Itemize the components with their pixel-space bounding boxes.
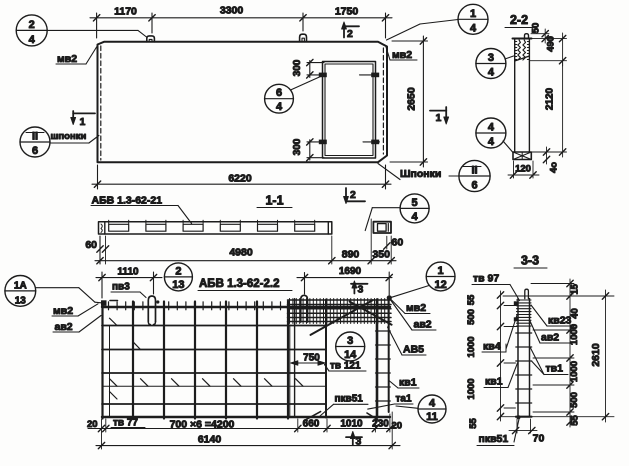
svg-text:тв1: тв1 <box>546 363 564 375</box>
svg-text:1010: 1010 <box>340 419 363 430</box>
svg-text:2: 2 <box>347 28 353 40</box>
svg-text:300: 300 <box>292 138 303 155</box>
svg-text:1000: 1000 <box>466 336 477 357</box>
svg-text:4o: 4o <box>549 162 560 173</box>
svg-text:1А: 1А <box>14 280 27 291</box>
svg-text:1: 1 <box>470 8 476 20</box>
svg-text:13: 13 <box>15 295 27 306</box>
svg-text:мв2: мв2 <box>392 49 412 61</box>
svg-text:4980: 4980 <box>229 247 253 259</box>
svg-text:1000: 1000 <box>569 324 580 345</box>
svg-text:3-3: 3-3 <box>521 254 539 268</box>
svg-text:2610: 2610 <box>590 343 602 367</box>
svg-text:шпонки: шпонки <box>51 131 87 142</box>
svg-text:1110: 1110 <box>117 267 139 278</box>
svg-text:15: 15 <box>570 283 581 294</box>
svg-text:кв4: кв4 <box>483 341 501 353</box>
svg-text:пв3: пв3 <box>112 282 130 293</box>
svg-text:6: 6 <box>471 180 477 192</box>
svg-text:АБВ 1.3-62-21: АБВ 1.3-62-21 <box>92 195 163 207</box>
svg-text:2: 2 <box>175 265 181 277</box>
svg-text:1: 1 <box>436 112 442 124</box>
svg-text:230: 230 <box>372 419 389 430</box>
svg-text:1: 1 <box>438 265 444 277</box>
svg-text:4: 4 <box>470 22 477 34</box>
svg-text:мв2: мв2 <box>53 305 73 317</box>
svg-text:120: 120 <box>515 164 531 175</box>
svg-text:тв 97: тв 97 <box>473 273 499 285</box>
svg-text:4: 4 <box>429 398 436 410</box>
svg-text:мв2: мв2 <box>57 53 77 65</box>
svg-text:1000: 1000 <box>466 378 477 399</box>
svg-text:55: 55 <box>570 415 581 426</box>
svg-text:3: 3 <box>347 335 353 347</box>
svg-text:2120: 2120 <box>545 87 556 110</box>
svg-text:20: 20 <box>87 419 98 430</box>
svg-text:500: 500 <box>569 392 580 408</box>
svg-text:6140: 6140 <box>198 434 222 446</box>
svg-text:Шпонки: Шпонки <box>400 168 441 180</box>
svg-text:2650: 2650 <box>406 87 418 111</box>
svg-text:4: 4 <box>488 122 495 134</box>
svg-text:кв1: кв1 <box>399 377 417 389</box>
svg-text:40: 40 <box>570 308 581 319</box>
svg-text:20: 20 <box>392 421 403 432</box>
svg-text:6: 6 <box>276 87 282 99</box>
svg-text:та1: та1 <box>396 394 412 405</box>
svg-text:ав2: ав2 <box>55 321 73 333</box>
svg-text:55: 55 <box>468 418 479 429</box>
svg-text:500: 500 <box>466 309 477 325</box>
svg-text:5: 5 <box>412 197 418 209</box>
svg-text:490: 490 <box>546 36 557 52</box>
svg-text:3300: 3300 <box>220 5 244 17</box>
svg-text:тв 121: тв 121 <box>330 361 361 372</box>
svg-text:6220: 6220 <box>228 173 252 185</box>
svg-text:мв2: мв2 <box>406 302 426 314</box>
svg-text:12: 12 <box>434 279 446 291</box>
svg-text:1170: 1170 <box>114 6 137 18</box>
svg-text:700 ×6 =4200: 700 ×6 =4200 <box>170 419 235 431</box>
svg-text:70: 70 <box>533 433 545 445</box>
svg-text:300: 300 <box>292 59 303 76</box>
svg-text:1: 1 <box>80 116 86 128</box>
svg-text:750: 750 <box>303 353 320 364</box>
svg-text:пкв51: пкв51 <box>335 394 364 405</box>
svg-text:4: 4 <box>488 136 495 148</box>
svg-text:660: 660 <box>303 419 320 430</box>
svg-text:2: 2 <box>29 19 35 31</box>
svg-text:2-2: 2-2 <box>510 13 528 27</box>
svg-text:6: 6 <box>32 145 38 157</box>
svg-text:пкв51: пкв51 <box>479 433 509 445</box>
svg-text:55: 55 <box>466 294 477 305</box>
svg-text:4: 4 <box>412 211 419 223</box>
svg-text:890: 890 <box>342 249 360 261</box>
svg-text:тв 77: тв 77 <box>113 418 138 429</box>
svg-text:ав2: ав2 <box>541 332 559 344</box>
svg-text:3: 3 <box>358 284 364 296</box>
svg-text:1000: 1000 <box>569 361 580 382</box>
svg-text:1690: 1690 <box>339 266 362 277</box>
svg-text:4: 4 <box>276 101 283 113</box>
svg-text:14: 14 <box>344 349 357 361</box>
svg-text:4: 4 <box>488 67 495 79</box>
svg-text:60: 60 <box>85 239 97 251</box>
svg-text:АБВ 1.3-62-2.2: АБВ 1.3-62-2.2 <box>199 278 280 290</box>
svg-text:1-1: 1-1 <box>265 194 283 208</box>
svg-text:ав2: ав2 <box>414 319 432 331</box>
svg-text:2: 2 <box>350 189 356 201</box>
svg-text:11: 11 <box>426 411 438 423</box>
svg-text:50: 50 <box>531 23 542 34</box>
svg-text:13: 13 <box>172 279 184 291</box>
svg-text:350: 350 <box>372 249 390 261</box>
svg-text:3: 3 <box>488 52 494 64</box>
svg-text:4: 4 <box>29 34 36 46</box>
svg-text:60: 60 <box>392 237 404 249</box>
svg-text:АВ5: АВ5 <box>403 344 424 356</box>
svg-text:1750: 1750 <box>335 6 359 18</box>
